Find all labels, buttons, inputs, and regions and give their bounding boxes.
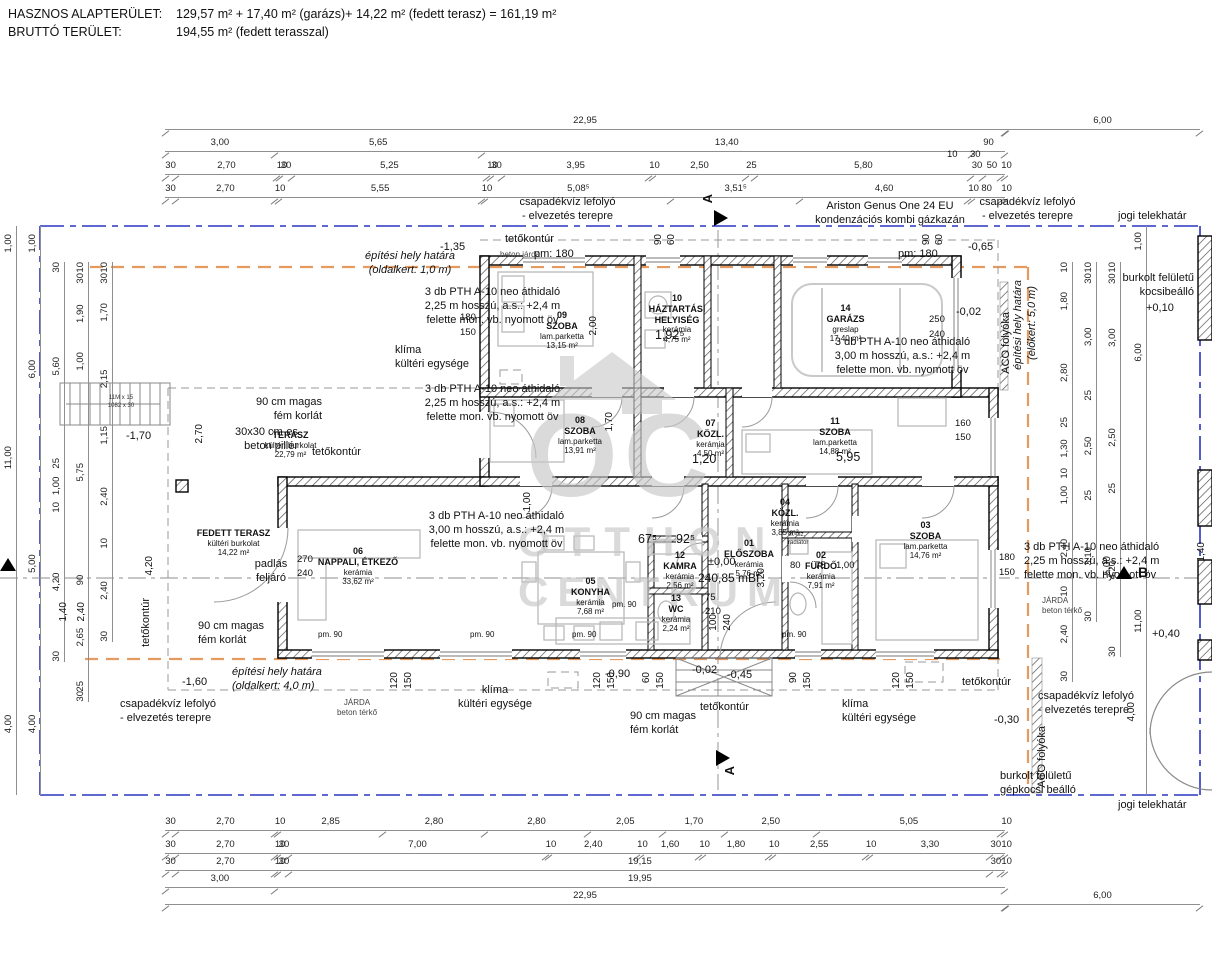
dim-value: 5,80: [755, 160, 971, 174]
dim-value: 5,60: [50, 273, 63, 458]
dim-value: 5,08⁵: [485, 183, 671, 197]
plan-dim-120: 1,20: [692, 452, 716, 466]
dim-row-bottom-5: 22,95: [165, 890, 1005, 905]
dim-value: 30: [278, 839, 289, 853]
dim-value: 30: [1058, 671, 1071, 682]
dim-value: 1,80: [703, 839, 769, 853]
level-m065: -0,65: [968, 241, 993, 253]
note-line: fém korlát: [198, 634, 264, 648]
note-line: felette mon. vb. nyomott öv: [400, 314, 585, 328]
level-m002-top: -0,02: [956, 306, 981, 318]
note-line: gépkocsi beálló: [1000, 784, 1076, 798]
plan-dim-150e: 150: [655, 672, 666, 689]
dim-value: 3,51⁵: [671, 183, 800, 197]
note-rainwater-bottom-left: csapadékvíz lefolyó - elvezetés terepre: [120, 698, 216, 726]
note-line: burkolt felületű: [1076, 272, 1194, 286]
note-pm180-2: pm: 180: [898, 248, 938, 262]
plan-dim-160: 160: [955, 418, 971, 429]
note-line: 3,00 m hosszú, a.s.: +2,4 m: [810, 350, 995, 364]
dim-row-top-3: 302,7010305,2510303,95102,50255,80305010: [165, 160, 1005, 175]
dim-value: 1,90: [74, 283, 87, 345]
dim-value: 25: [74, 681, 87, 692]
note-line: 90 cm magas: [212, 396, 322, 410]
note-plot-boundary-top: jogi telekhatár: [1118, 210, 1187, 224]
note-site-limit-top: építési hely határa (oldalkert: 1,0 m): [330, 250, 490, 278]
room-material: kerámia: [645, 615, 707, 625]
room-label-06: 06 NAPPALI, ÉTKEZŐ kerámia 33,62 m²: [298, 546, 418, 587]
plan-dim-1925: 1,92⁵: [655, 328, 685, 342]
level-m170: -1,70: [126, 430, 151, 442]
dim-value: 5,65: [275, 137, 482, 151]
dim-value: 22,95: [165, 890, 1005, 904]
room-number: 03: [868, 520, 983, 531]
note-lintel-4: 3 db PTH A-10 neo áthidaló 3,00 m hosszú…: [404, 510, 589, 551]
dim-value: 1,00: [1132, 226, 1145, 258]
note-plot-boundary-bottom: jogi telekhatár: [1118, 799, 1187, 813]
plan-dim-595: 5,95: [836, 450, 860, 464]
dim-value: 10: [1001, 183, 1005, 197]
note-lintel-1: 3 db PTH A-10 neo áthidaló 2,25 m hosszú…: [400, 286, 585, 327]
room-label-13: 13 WC kerámia 2,24 m²: [645, 593, 707, 634]
plan-dim-320: 3,20: [756, 568, 767, 587]
dim-value: 13,40: [482, 137, 972, 151]
dim-value: 1,80: [1058, 273, 1071, 329]
room-material: lam.parketta: [505, 437, 655, 447]
note-line: kültéri egysége: [440, 698, 550, 712]
plan-dim-170: 1,70: [604, 412, 615, 431]
note-line: 3 db PTH A-10 neo áthidaló: [400, 383, 585, 397]
room-number: 04: [745, 497, 825, 508]
note-line: csapadékvíz lefolyó: [120, 698, 216, 712]
plan-dim-120a: 120: [389, 672, 400, 689]
dim-value: 5,05: [817, 816, 1002, 830]
note-roof-contour-5: tetőkontúr: [140, 598, 152, 647]
room-material: kerámia: [745, 519, 825, 529]
dim-overlay-10: 10: [947, 149, 958, 160]
note-line: 3 db PTH A-10 neo áthidaló: [1024, 541, 1159, 555]
plan-dim-150f: 150: [802, 672, 813, 689]
level-m030: -0,30: [994, 714, 1019, 726]
plan-dim-150c: 150: [606, 672, 617, 689]
level-p010: +0,10: [1146, 302, 1174, 314]
note-line: (előkert: 5,0 m): [1026, 286, 1038, 360]
dim-value: 1,00: [50, 469, 63, 502]
note-lintel-2: 3 db PTH A-10 neo áthidaló 3,00 m hosszú…: [810, 336, 995, 377]
note-line: (oldalkert: 4,0 m): [232, 680, 322, 694]
dim-value: 5,75: [74, 378, 87, 565]
room-name: SZOBA: [505, 426, 655, 437]
note-attic-access: padlás feljáró: [236, 558, 306, 586]
note-line: kültéri egysége: [395, 358, 469, 372]
section-marker-b-label: B: [1138, 564, 1148, 582]
dim-value: 2,85: [278, 816, 382, 830]
room-label-fedett-terasz: FEDETT TERASZ kültéri burkolat 14,22 m²: [176, 528, 291, 558]
dim-value: 25: [1082, 390, 1095, 401]
note-railing-3: 90 cm magas fém korlát: [630, 710, 696, 738]
note-line: 1082 x 30: [96, 403, 146, 411]
floor-plan-page: HASZNOS ALAPTERÜLET:129,57 m² + 17,40 m²…: [0, 0, 1212, 954]
note-line: radiátor: [788, 540, 808, 548]
note-line: 3,00 m hosszú, a.s.: +2,4 m: [404, 524, 589, 538]
dim-value: 2,50: [1106, 392, 1119, 483]
room-area: 14,76 m²: [868, 551, 983, 561]
dim-value: 1,70: [663, 816, 725, 830]
room-material: kerámia: [668, 440, 753, 450]
dim-value: 2,70: [176, 816, 275, 830]
note-line: 90 cm magas: [198, 620, 264, 634]
header-value-1: 129,57 m² + 17,40 m² (garázs)+ 14,22 m² …: [176, 7, 556, 21]
level-p040: +0,40: [1152, 628, 1180, 640]
note-roof-contour-4: tetőkontúr: [962, 676, 1011, 690]
dim-value: 4,00: [26, 653, 39, 795]
dim-value: 25: [746, 160, 755, 174]
dim-value: 10: [1082, 262, 1095, 273]
dim-value: 2,80: [485, 816, 587, 830]
note-rainwater-top-left: csapadékvíz lefolyó - elvezetés terepre: [495, 196, 640, 224]
note-line: felette mon. vb. nyomott öv: [404, 538, 589, 552]
dim-row-bottom-2: 302,7010307,00102,40101,60101,80102,5510…: [165, 839, 1005, 854]
dim-value: 4,00: [2, 653, 15, 795]
dim-value: 30: [280, 160, 291, 174]
title-block: HASZNOS ALAPTERÜLET:129,57 m² + 17,40 m²…: [8, 6, 556, 41]
note-line: - elvezetés terepre: [120, 712, 216, 726]
dim-value: 1,00: [1058, 479, 1071, 510]
dim-value: 1,60: [641, 839, 700, 853]
note-line: (oldalkert: 1,0 m): [330, 264, 490, 278]
room-material: kerámia: [298, 568, 418, 578]
room-number: 14: [788, 303, 903, 314]
dim-col-right-1: 101,802,80251,30101,002,40102,4030: [1058, 262, 1073, 682]
dim-value: 30: [165, 856, 176, 870]
plan-dim-150d: 150: [905, 672, 916, 689]
dim-value: 2,80: [383, 816, 485, 830]
dim-value: 10: [1001, 856, 1005, 870]
note-line: 2,25 m hosszú, a.s.: +2,4 m: [400, 397, 585, 411]
room-area: 14,88 m²: [775, 447, 895, 457]
dim-value: 5,00: [26, 475, 39, 653]
dim-value: 30: [1106, 646, 1119, 657]
note-roof-contour-2: tetőkontúr: [312, 446, 361, 460]
plan-dim-180l: 180: [460, 312, 476, 323]
room-name: NAPPALI, ÉTKEZŐ: [298, 557, 418, 568]
plan-dim-500: 5,00: [1102, 556, 1113, 575]
room-number: 01: [706, 538, 792, 549]
plan-dim-120b: 120: [592, 672, 603, 689]
note-line: kültéri egysége: [842, 712, 916, 726]
note-line: csapadékvíz lefolyó: [1038, 690, 1134, 704]
note-boiler: Ariston Genus One 24 EU kondenzációs kom…: [790, 200, 990, 228]
plan-dim-150r: 150: [999, 567, 1015, 578]
room-area: 13,15 m²: [502, 341, 622, 351]
plan-dim-250: 250: [929, 314, 945, 325]
dim-value: 1,00: [26, 226, 39, 262]
note-line: építési hely határa: [1012, 280, 1024, 370]
dim-value: 30: [278, 856, 289, 870]
room-number: 11: [775, 416, 895, 427]
note-paved-walk-right: JÁRDA beton térkő: [1042, 596, 1082, 616]
dim-value: 2,70: [176, 160, 277, 174]
dim-value: 30: [165, 816, 176, 830]
plan-dim-100m: 1,00: [836, 560, 855, 571]
plan-dim-120c: 120: [891, 672, 902, 689]
dim-value: 80: [972, 183, 1001, 197]
dim-value: 3,00: [165, 137, 275, 151]
dim-value: 90: [74, 565, 87, 594]
dim-row-bottom-4: 3,0019,95: [165, 873, 1005, 888]
dim-value: 4,20: [50, 512, 63, 651]
header-value-2: 194,55 m² (fedett terasszal): [176, 25, 329, 39]
dim-value: 25: [1082, 490, 1095, 501]
plan-dim-140b: 1,40: [58, 602, 69, 621]
dim-value: 11,00: [1132, 447, 1145, 795]
dim-value: 10: [74, 262, 87, 273]
dim-row-bottom-6m: 6,00: [1005, 890, 1200, 905]
dim-value: 1,30: [1058, 428, 1071, 469]
note-line: 2,25 m hosszú, a.s.: +2,4 m: [400, 300, 585, 314]
plan-dim-240b: 240: [929, 329, 945, 340]
plan-dim-100b: 1,00: [522, 492, 533, 511]
room-name: SZOBA: [868, 531, 983, 542]
dim-value: 30: [74, 691, 87, 702]
note-line: feljáró: [236, 572, 306, 586]
note-line: kocsibeálló: [1076, 286, 1194, 300]
dim-col-left-5: 10301,702,151,152,40102,4030: [98, 262, 113, 642]
room-label-03: 03 SZOBA lam.parketta 14,76 m²: [868, 520, 983, 561]
dim-value: 2,50: [1082, 401, 1095, 490]
plan-dim-180r: 180: [999, 552, 1015, 563]
section-marker-a-top-icon: [714, 210, 728, 226]
dim-value: 50: [983, 160, 1002, 174]
note-line: építési hely határa: [232, 666, 322, 680]
dim-value: 10: [98, 538, 111, 549]
note-line: JÁRDA: [322, 698, 392, 708]
dim-value: 6,00: [26, 262, 39, 475]
plan-dim-420m: 4,20: [144, 556, 155, 575]
room-area: 2,24 m²: [645, 624, 707, 634]
dim-value: 19,15: [289, 856, 990, 870]
plan-dim-75: 75: [815, 560, 826, 571]
note-line: 11M x 15: [96, 395, 146, 403]
level-zero: ±0,00: [708, 556, 735, 568]
room-number: 05: [543, 576, 638, 587]
dim-value: 10: [1001, 839, 1005, 853]
plan-dim-90a: 90: [788, 672, 799, 683]
plan-dim-100: 100: [708, 614, 719, 631]
plan-dim-925: 92⁵: [676, 532, 695, 546]
room-area: 3,85 m²: [745, 528, 825, 538]
dim-value: 10: [1058, 586, 1071, 597]
room-label-05: 05 KONYHA kerámia 7,68 m²: [543, 576, 638, 617]
plan-dim-90c: 90: [921, 234, 932, 245]
dim-value: 10: [1001, 816, 1005, 830]
note-line: 90 cm magas: [630, 710, 696, 724]
level-m002-bottom: -0,02: [692, 664, 717, 676]
header-label-1: HASZNOS ALAPTERÜLET:: [8, 6, 176, 24]
plan-dim-75b: 75: [705, 592, 716, 603]
room-number: 10: [638, 293, 716, 304]
room-name: HÁZTARTÁSI HELYISÉG: [638, 304, 716, 326]
note-line: 3 db PTH A-10 neo áthidaló: [810, 336, 995, 350]
room-material: greslap: [788, 325, 903, 335]
plan-dim-240c: 240: [722, 614, 733, 631]
room-material: lam.parketta: [775, 438, 895, 448]
room-name: WC: [645, 604, 707, 615]
dim-value: 1,15: [98, 416, 111, 456]
dim-value: 3,95: [502, 160, 649, 174]
dim-value: 4,60: [800, 183, 968, 197]
dim-col-left-4: 10301,901,005,75902,652530: [74, 262, 89, 702]
dim-value: 7,00: [289, 839, 545, 853]
dim-value: 6,00: [1005, 890, 1200, 904]
note-line: fém korlát: [212, 410, 322, 424]
note-pm90-4: pm. 90: [782, 630, 806, 640]
note-paved-walk-left: JÁRDA beton térkő: [322, 698, 392, 718]
dim-value: 19,95: [275, 873, 1005, 887]
dim-value: 10: [1058, 262, 1071, 273]
section-marker-b-icon: [1116, 566, 1132, 579]
note-line: klíma: [842, 698, 916, 712]
plan-dim-270: 270: [297, 554, 313, 565]
plan-dim-200: 2,00: [588, 316, 599, 335]
note-pm90-2: pm. 90: [470, 630, 494, 640]
dim-row-top-6m: 6,00: [1005, 115, 1200, 130]
dim-value: 22,95: [165, 115, 1005, 129]
note-line: felette mon. vb. nyomott öv: [400, 411, 585, 425]
room-number: 13: [645, 593, 707, 604]
plan-dim-270m: 2,70: [194, 424, 205, 443]
dim-value: 30: [1082, 611, 1095, 622]
plan-dim-60c: 60: [934, 234, 945, 245]
room-area: 14,22 m²: [176, 548, 291, 558]
section-marker-a-bottom-label: A: [722, 766, 737, 775]
dim-value: 5,55: [279, 183, 482, 197]
note-line: kondenzációs kombi gázkazán: [790, 214, 990, 228]
dim-col-left-2: 1,006,005,004,00: [26, 226, 41, 795]
section-marker-a-bottom-icon: [716, 750, 730, 766]
note-pm90-5: pm. 90: [612, 600, 636, 610]
dim-value: 3,00: [1106, 283, 1119, 392]
room-name: KÖZL.: [668, 429, 753, 440]
room-number: 07: [668, 418, 753, 429]
note-railing-1: 90 cm magas fém korlát: [212, 396, 322, 424]
dim-value: 10: [50, 502, 63, 513]
room-area: 7,91 m²: [786, 581, 856, 591]
room-area: 13,91 m²: [505, 446, 655, 456]
dim-value: 5,25: [292, 160, 488, 174]
room-name: GARÁZS: [788, 314, 903, 325]
note-pm90-3: pm. 90: [572, 630, 596, 640]
plan-dim-80: 80: [790, 560, 801, 571]
dim-value: 30: [98, 631, 111, 642]
dim-value: 30: [990, 839, 1001, 853]
plan-dim-150b: 150: [403, 672, 414, 689]
note-ac-unit-1: klíma kültéri egysége: [395, 344, 469, 372]
room-area: 33,62 m²: [298, 577, 418, 587]
dim-value: 1,00: [74, 345, 87, 378]
note-line: - elvezetés terepre: [1038, 704, 1134, 718]
dim-value: 2,50: [653, 160, 746, 174]
dim-value: 30: [990, 856, 1001, 870]
room-name: KONYHA: [543, 587, 638, 598]
note-line: el. fsz.: [788, 532, 808, 540]
room-name: KÖZL.: [745, 508, 825, 519]
room-material: kerámia: [786, 572, 856, 582]
note-line: klíma: [395, 344, 469, 358]
note-line: klíma: [440, 684, 550, 698]
dim-value: 2,40: [98, 455, 111, 538]
room-number: 12: [650, 550, 710, 561]
note-ac-unit-2: klíma kültéri egysége: [440, 684, 550, 712]
note-line: burkolt felületű: [1000, 770, 1076, 784]
dim-value: 30: [491, 160, 502, 174]
dim-value: 2,40: [549, 839, 637, 853]
room-material: lam.parketta: [502, 332, 622, 342]
dim-value: 2,05: [588, 816, 663, 830]
dim-overlay-30: 30: [970, 149, 981, 160]
dim-value: 1,00: [2, 226, 15, 262]
dim-value: 25: [1058, 417, 1071, 428]
dim-value: 2,55: [773, 839, 866, 853]
dim-value: 11,00: [2, 262, 15, 653]
dim-col-left-1: 1,0011,004,00: [2, 226, 17, 795]
note-paved-carport-top: burkolt felületű kocsibeálló: [1076, 272, 1194, 300]
dim-value: 25: [1106, 483, 1119, 494]
plan-dim-90b: 90: [653, 234, 664, 245]
dim-value: 10: [1106, 262, 1119, 273]
dim-value: 30: [971, 160, 982, 174]
note-paved-carport-bottom: burkolt felületű gépkocsi beálló: [1000, 770, 1076, 798]
room-number: 06: [298, 546, 418, 557]
note-rainwater-bottom-right: csapadékvíz lefolyó - elvezetés terepre: [1038, 690, 1134, 718]
note-line: építési hely határa: [330, 250, 490, 264]
note-roof-contour-3: tetőkontúr: [700, 701, 749, 715]
note-pm180-1: pm: 180: [534, 248, 574, 262]
room-material: kültéri burkolat: [176, 539, 291, 549]
dim-value: 30: [50, 262, 63, 273]
note-railing-2: 90 cm magas fém korlát: [198, 620, 264, 648]
note-line: 3 db PTH A-10 neo áthidaló: [404, 510, 589, 524]
dim-row-bottom-3: 302,70103019,153010: [165, 856, 1005, 871]
plan-dim-240m: 2,40: [76, 602, 87, 621]
plan-dim-60b: 60: [666, 234, 677, 245]
note-lintel-3: 3 db PTH A-10 neo áthidaló 2,25 m hosszú…: [400, 383, 585, 424]
dim-value: 2,50: [725, 816, 817, 830]
dim-row-bottom-1: 302,70102,852,802,802,051,702,505,0510: [165, 816, 1005, 831]
room-name: SZOBA: [775, 427, 895, 438]
note-line: - elvezetés terepre: [495, 210, 640, 224]
plan-dim-150a: 150: [955, 432, 971, 443]
plan-dim-400: 4,00: [1126, 702, 1137, 721]
room-label-04: 04 KÖZL. kerámia 3,85 m²: [745, 497, 825, 538]
level-m045: -0,45: [727, 669, 752, 681]
room-label-11: 11 SZOBA lam.parketta 14,88 m²: [775, 416, 895, 457]
note-line: beton térkő: [322, 708, 392, 718]
dim-value: 3,00: [165, 873, 275, 887]
dim-value: 2,40: [98, 549, 111, 632]
header-label-2: BRUTTÓ TERÜLET:: [8, 24, 176, 42]
room-material: lam.parketta: [868, 542, 983, 552]
section-marker-left-icon: [0, 558, 16, 571]
dim-col-right-3: 10303,002,50254,2030: [1106, 262, 1121, 657]
dim-value: 30: [165, 839, 176, 853]
plan-dim-240a: 240: [297, 568, 313, 579]
dim-row-top-1: 22,95: [165, 115, 1005, 130]
dim-value: 10: [1001, 160, 1005, 174]
dim-value: 2,80: [1058, 329, 1071, 417]
note-line: beton térkő: [1042, 606, 1082, 616]
dim-row-top-2: 3,005,6513,4090: [165, 137, 1005, 152]
note-radiator: el. fsz. radiátor: [788, 532, 808, 547]
